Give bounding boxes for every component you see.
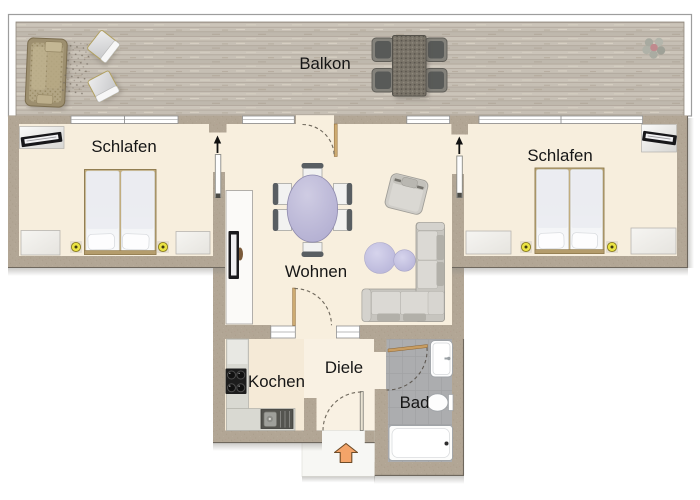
svg-text:Schlafen: Schlafen [91,137,156,156]
svg-text:Kochen: Kochen [248,372,305,391]
svg-text:Balkon: Balkon [299,54,350,73]
svg-text:Diele: Diele [325,358,363,377]
svg-text:Schlafen: Schlafen [527,146,592,165]
svg-text:Wohnen: Wohnen [285,262,347,281]
svg-text:Bad: Bad [400,393,430,412]
